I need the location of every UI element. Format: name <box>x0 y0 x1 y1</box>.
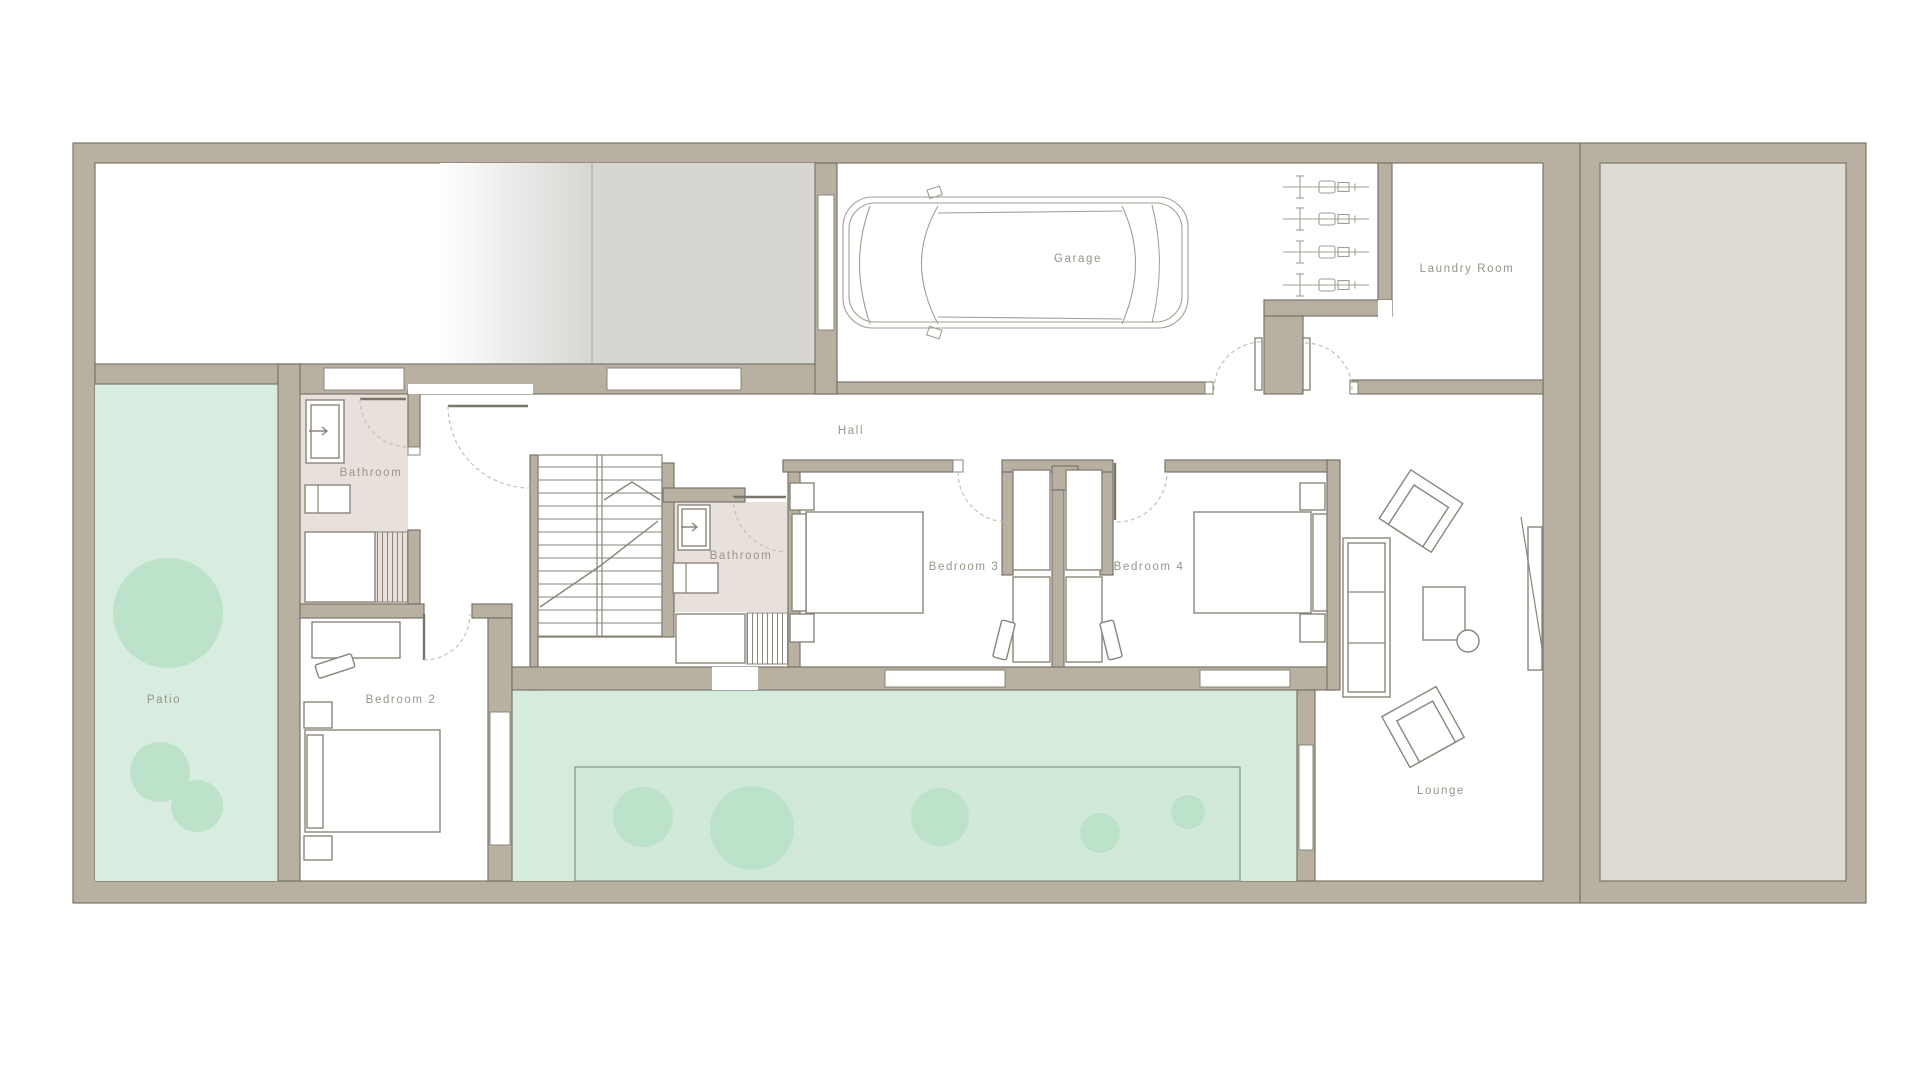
door-gap-laundry <box>1378 300 1392 368</box>
floor-plan-drawing: Garage Laundry Room Hall Bathroom Bathro… <box>0 0 1920 1080</box>
wall-laundry-hall <box>1350 380 1543 394</box>
tree <box>1171 795 1205 829</box>
tree <box>911 788 969 846</box>
bed-bedroom4 <box>1194 512 1311 613</box>
wall-closet-center <box>1052 472 1064 667</box>
window-bedroom2-courtyard <box>490 712 510 845</box>
nightstand-bedroom4-b <box>1300 614 1325 642</box>
window-hall-north <box>607 368 741 390</box>
nightstand-bedroom2-b <box>304 836 332 860</box>
wall-bedroom4-top <box>1165 460 1333 472</box>
wall-bedroom4-east <box>1327 460 1340 690</box>
label-hall: Hall <box>838 425 864 437</box>
bath-step-bathroom1 <box>375 532 408 602</box>
tree <box>171 780 223 832</box>
window-bedroom3-courtyard <box>885 670 1005 687</box>
label-bathroom-1: Bathroom <box>340 467 403 479</box>
label-laundry-room: Laundry Room <box>1420 263 1515 275</box>
sink-bathroom2 <box>673 563 718 593</box>
window-bathroom1-north <box>324 368 404 390</box>
door-stop-hall-a <box>1205 382 1213 394</box>
tree <box>1080 813 1120 853</box>
driveway-gradient <box>440 163 592 364</box>
sink-bathroom1 <box>305 485 350 513</box>
door-gap-hall-north <box>408 384 533 394</box>
label-garage: Garage <box>1054 253 1102 265</box>
bathtub-bathroom2 <box>676 614 745 663</box>
bed-bedroom3 <box>806 512 923 613</box>
desk-bedroom4 <box>1066 577 1102 662</box>
headboard-bedroom4 <box>1313 514 1327 611</box>
coffee-table-lounge <box>1423 587 1465 640</box>
nightstand-bedroom4-a <box>1300 483 1325 510</box>
desk-bedroom3 <box>1013 577 1050 662</box>
wall-bedroom2-top-b <box>472 604 512 618</box>
label-lounge: Lounge <box>1417 785 1465 797</box>
stair-treads <box>538 455 662 637</box>
nightstand-bedroom3-a <box>790 483 814 510</box>
wall-closet-west <box>1002 472 1013 575</box>
nightstand-bedroom3-b <box>790 614 814 642</box>
wall-bedroom2-top-a <box>300 604 424 618</box>
wall-garage-hall <box>837 382 1213 394</box>
door-leaf-vestibule-left <box>1255 338 1262 390</box>
desk-bedroom2 <box>312 622 400 658</box>
wall-vestibule-pillar <box>1264 316 1303 394</box>
label-patio: Patio <box>147 694 181 706</box>
tree <box>710 786 794 870</box>
tv-console-lounge <box>1528 527 1542 670</box>
bathtub-bathroom1 <box>305 532 375 602</box>
window-lounge-courtyard <box>1299 745 1313 850</box>
wall-patio-top <box>95 364 300 384</box>
wall-bikerack-laundry <box>1378 163 1392 300</box>
floor-plan-canvas: Garage Laundry Room Hall Bathroom Bathro… <box>0 0 1920 1080</box>
headboard-bedroom3 <box>792 514 806 611</box>
courtyard-inner-lawn <box>575 767 1240 881</box>
wall-patio-right <box>278 364 300 881</box>
door-stop-hall-b <box>1350 382 1358 394</box>
sofa-lounge <box>1343 538 1390 697</box>
window-bedroom4-courtyard <box>1200 670 1290 687</box>
wall-bathroom1-east-b <box>408 530 420 604</box>
wall-bathroom1-east-a <box>408 390 420 447</box>
label-bedroom-2: Bedroom 2 <box>366 694 437 706</box>
closet-bedroom3 <box>1013 470 1050 570</box>
wall-bedroom3-top <box>783 460 953 472</box>
tree <box>113 558 223 668</box>
garage-door <box>818 195 834 330</box>
wall-vestibule-top <box>1264 300 1392 316</box>
tree <box>613 787 673 847</box>
staircase <box>538 455 662 637</box>
label-bedroom-3: Bedroom 3 <box>929 561 1000 573</box>
floor-lamp-lounge <box>1457 630 1479 652</box>
label-bathroom-2: Bathroom <box>710 550 773 562</box>
driveway-gray-pad <box>592 163 815 364</box>
nightstand-bedroom2-a <box>304 702 332 728</box>
wall-stair-west <box>530 455 538 690</box>
door-leaf-vestibule-right <box>1303 338 1310 390</box>
door-stop-bathroom1 <box>408 447 420 455</box>
closet-bedroom4 <box>1066 470 1102 570</box>
door-stop-bedroom3 <box>953 460 963 472</box>
bed-bedroom2 <box>305 730 440 832</box>
label-bedroom-4: Bedroom 4 <box>1114 561 1185 573</box>
door-gap-courtyard <box>712 667 758 690</box>
adjacent-plot-interior <box>1600 163 1846 881</box>
bath-step-bathroom2 <box>747 613 788 664</box>
